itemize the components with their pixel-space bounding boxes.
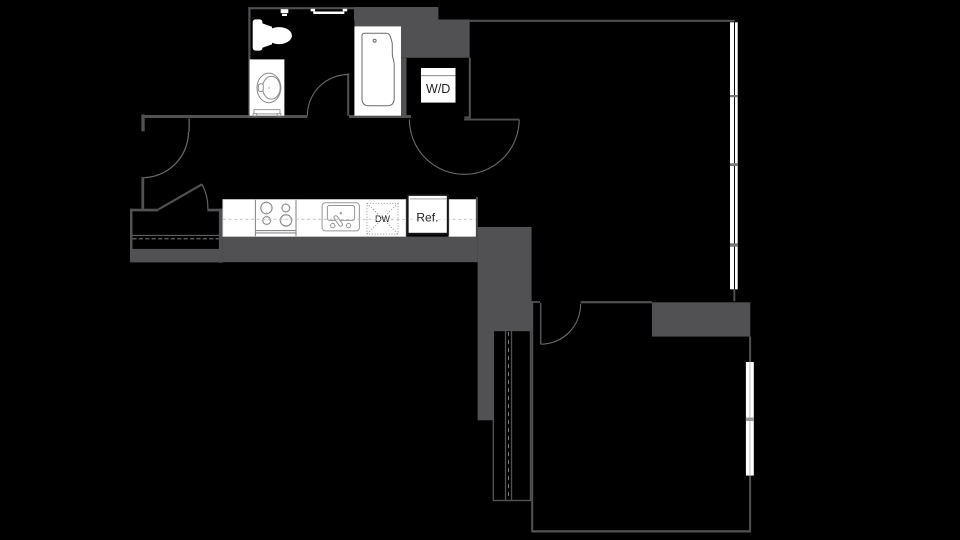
svg-text:W/D: W/D bbox=[426, 82, 450, 96]
svg-text:Ref.: Ref. bbox=[416, 211, 438, 225]
